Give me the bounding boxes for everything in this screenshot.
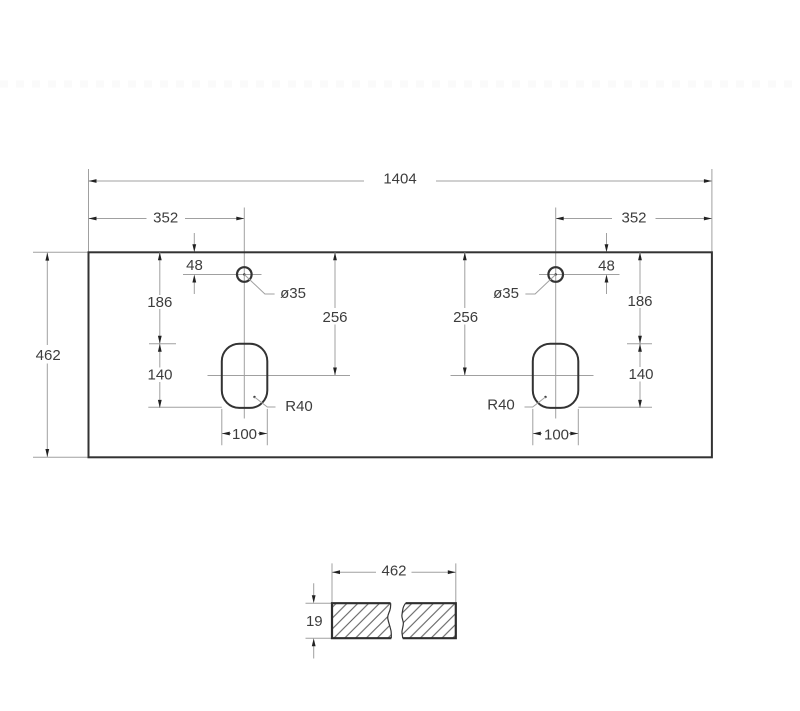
svg-text:ø35: ø35 (280, 285, 306, 302)
svg-text:352: 352 (621, 209, 646, 226)
svg-text:48: 48 (186, 257, 203, 274)
svg-text:ø35: ø35 (493, 285, 519, 302)
svg-text:100: 100 (232, 426, 257, 443)
svg-text:R40: R40 (285, 398, 313, 415)
svg-text:256: 256 (322, 309, 347, 326)
svg-text:352: 352 (153, 209, 178, 226)
svg-text:19: 19 (306, 613, 323, 630)
svg-text:140: 140 (147, 366, 172, 383)
svg-text:462: 462 (381, 563, 406, 580)
svg-text:186: 186 (147, 294, 172, 311)
svg-text:140: 140 (628, 366, 653, 383)
svg-text:R40: R40 (487, 397, 515, 414)
svg-text:462: 462 (36, 347, 61, 364)
svg-text:1404: 1404 (383, 171, 416, 188)
svg-text:100: 100 (544, 426, 569, 443)
svg-text:256: 256 (453, 309, 478, 326)
svg-text:186: 186 (627, 293, 652, 310)
svg-text:48: 48 (598, 257, 615, 274)
